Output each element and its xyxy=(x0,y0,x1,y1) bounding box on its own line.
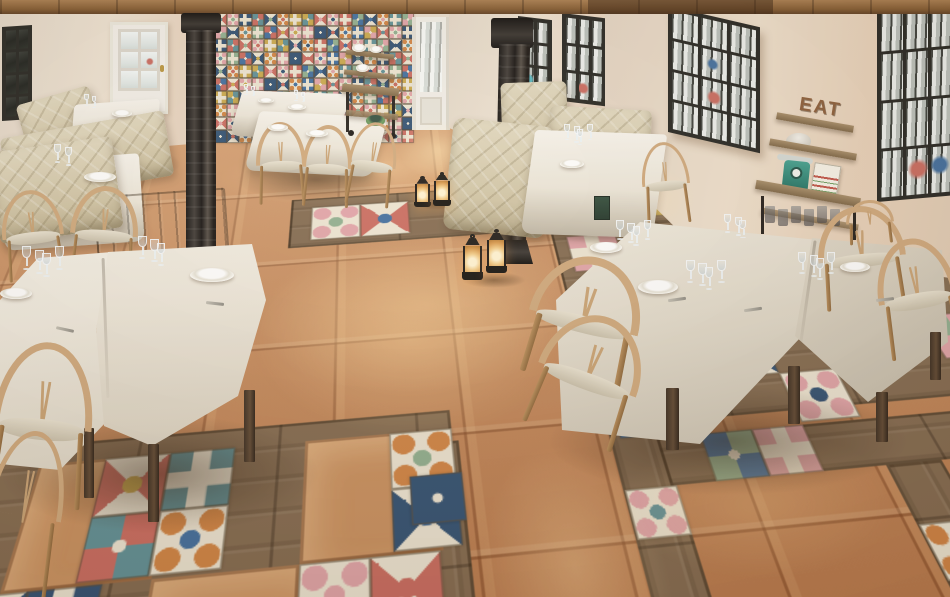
glass-foot xyxy=(55,161,60,163)
patchwork-tile xyxy=(364,13,377,26)
patchwork-tile xyxy=(264,13,277,26)
glass-foot xyxy=(817,278,823,280)
window-pane xyxy=(672,71,698,104)
patchwork-tile xyxy=(227,78,240,91)
patchwork-tile xyxy=(389,26,402,39)
patchwork-tile xyxy=(252,26,265,39)
patchwork-tile xyxy=(302,13,315,26)
wine-glass xyxy=(42,253,51,277)
wine-glass xyxy=(717,260,726,283)
patchwork-tile xyxy=(327,13,340,26)
glass-stem xyxy=(590,132,592,138)
table-leg xyxy=(788,366,800,424)
wishbone-chair xyxy=(639,140,694,226)
table-leg xyxy=(876,392,888,442)
chair-leg xyxy=(302,167,309,206)
wishbone-chair xyxy=(255,121,308,205)
window-pane xyxy=(141,52,158,69)
ceiling-beam xyxy=(0,0,950,14)
patchwork-tile xyxy=(277,26,290,39)
glass-stem xyxy=(727,223,729,230)
floor-patchwork-tile xyxy=(310,204,360,240)
patchwork-tile xyxy=(264,26,277,39)
glass-foot xyxy=(139,257,145,259)
lantern-base xyxy=(414,202,431,207)
glass-foot xyxy=(66,164,71,166)
glass-foot xyxy=(799,272,805,274)
wine-glass xyxy=(65,147,72,166)
shelf-dish xyxy=(370,46,382,53)
window-pane xyxy=(730,55,756,88)
floor-patchwork-tile xyxy=(296,557,371,597)
wine-glass xyxy=(644,220,652,240)
patchwork-tile xyxy=(227,39,240,52)
glass-foot xyxy=(56,268,63,270)
white-plate xyxy=(560,160,584,168)
patchwork-tile xyxy=(239,39,252,52)
wine-glass xyxy=(587,124,593,140)
french-door-panes xyxy=(118,29,160,91)
patchwork-tile xyxy=(327,26,340,39)
patchwork-tile xyxy=(377,26,390,39)
glass-stem xyxy=(647,230,649,237)
glass-stem xyxy=(819,269,821,277)
glass-stem xyxy=(567,132,569,138)
wine-glass xyxy=(616,220,624,240)
chair-leg xyxy=(385,169,391,209)
patchwork-tile xyxy=(227,26,240,39)
glass-tumbler xyxy=(791,206,801,223)
wine-glass xyxy=(816,258,824,280)
glass-stem xyxy=(161,254,163,262)
patchwork-tile xyxy=(239,13,252,26)
glass-stem xyxy=(709,278,711,286)
cast-iron-column xyxy=(186,30,216,252)
white-plate xyxy=(840,262,870,272)
patchwork-tile xyxy=(314,26,327,39)
glass-foot xyxy=(92,107,95,108)
patchwork-tile xyxy=(227,13,240,26)
glass-foot xyxy=(633,244,639,246)
patchwork-tile xyxy=(352,26,365,39)
window-pane xyxy=(537,45,549,66)
window-pane xyxy=(6,75,16,95)
glass-stem xyxy=(142,247,144,255)
glass-tumbler xyxy=(765,206,775,223)
window-pane xyxy=(672,41,698,74)
patchwork-tile xyxy=(264,39,277,52)
white-plate xyxy=(190,268,234,282)
patchwork-tile xyxy=(289,13,302,26)
window-pane xyxy=(701,48,727,81)
glass-bowl xyxy=(22,246,31,258)
glass-bowl xyxy=(798,252,806,263)
glass-stem xyxy=(26,258,28,267)
window-pane xyxy=(881,150,903,198)
glass-foot xyxy=(302,101,305,102)
patchwork-tile xyxy=(227,52,240,65)
window-pane xyxy=(672,102,698,135)
doorway-glass xyxy=(420,22,442,92)
glass-bowl xyxy=(816,258,824,269)
window-pane xyxy=(672,11,698,44)
window-pane xyxy=(592,48,602,74)
patchwork-tile xyxy=(302,78,315,91)
lantern-ring xyxy=(470,234,476,239)
patchwork-tile xyxy=(377,13,390,26)
patchwork-tile xyxy=(289,52,302,65)
patchwork-tile xyxy=(264,65,277,78)
window-pane xyxy=(141,32,158,49)
glass-foot xyxy=(578,144,583,145)
glass-bowl xyxy=(686,260,695,271)
glass-stem xyxy=(636,236,638,243)
floor-patchwork-tile xyxy=(370,550,445,597)
lantern-lid xyxy=(461,238,484,245)
patchwork-tile xyxy=(339,26,352,39)
wine-glass xyxy=(577,129,583,145)
glass-foot xyxy=(740,237,745,239)
white-plate xyxy=(258,98,274,103)
patchwork-tile xyxy=(314,13,327,26)
glass-stem xyxy=(253,91,255,95)
patchwork-tile xyxy=(227,91,240,104)
patchwork-tile xyxy=(289,39,302,52)
chair-leg xyxy=(74,433,83,510)
lantern-base xyxy=(433,200,451,206)
glass-stem xyxy=(59,258,61,267)
window-pane xyxy=(592,21,602,47)
glass-foot xyxy=(43,275,50,277)
wine-glass xyxy=(251,86,255,97)
patchwork-tile xyxy=(314,65,327,78)
glass-foot xyxy=(718,281,724,283)
window-pane xyxy=(566,45,576,71)
patchwork-tile xyxy=(302,65,315,78)
glass-foot xyxy=(645,238,651,240)
white-plate xyxy=(638,280,678,294)
patchwork-tile xyxy=(339,13,352,26)
glass-foot xyxy=(252,95,255,96)
patchwork-tile xyxy=(327,65,340,78)
table-leg xyxy=(666,388,679,450)
patchwork-tile xyxy=(239,26,252,39)
glass-foot xyxy=(617,238,623,240)
wine-glass xyxy=(798,252,806,274)
white-plate xyxy=(288,104,306,110)
patchwork-tile xyxy=(252,52,265,65)
glass-foot xyxy=(725,231,730,233)
glass-foot xyxy=(565,139,570,140)
wishbone-chair xyxy=(845,198,896,245)
glass-stem xyxy=(246,89,248,93)
wine-glass xyxy=(564,124,570,140)
patchwork-tile xyxy=(364,26,377,39)
glass-stem xyxy=(721,271,723,279)
back-doorway xyxy=(412,17,450,130)
glass-stem xyxy=(46,265,48,274)
window-pane xyxy=(701,18,727,51)
patchwork-tile xyxy=(327,39,340,52)
glass-bowl xyxy=(633,226,641,236)
glass-stem xyxy=(39,261,41,270)
window-pane xyxy=(931,146,950,194)
window-pane xyxy=(6,97,16,117)
lantern-base xyxy=(486,266,507,273)
glass-stem xyxy=(86,100,88,104)
patchwork-tile xyxy=(314,52,327,65)
patchwork-tile xyxy=(277,39,290,52)
glass-bowl xyxy=(54,144,61,153)
wine-glass xyxy=(294,90,298,101)
candle-lantern xyxy=(461,234,484,280)
window-pane xyxy=(730,85,756,118)
patchwork-tile xyxy=(239,65,252,78)
glass-stem xyxy=(57,153,59,160)
wine-glass xyxy=(724,214,731,233)
table-leg xyxy=(148,444,159,522)
patchwork-tile xyxy=(277,65,290,78)
window-pane xyxy=(566,17,576,43)
candle-lantern xyxy=(432,172,452,206)
white-plate xyxy=(306,130,328,137)
window-pane xyxy=(19,74,29,94)
white-plate xyxy=(112,110,132,117)
window-pane xyxy=(906,99,928,147)
glass-tumbler xyxy=(778,209,788,226)
shelf-dish xyxy=(356,64,369,72)
restaurant-scene: EAT xyxy=(0,0,950,597)
patchwork-tile xyxy=(264,78,277,91)
glass-stem xyxy=(690,271,692,279)
glass-foot xyxy=(828,272,834,274)
right-window-1 xyxy=(668,6,760,153)
chair-leg xyxy=(683,184,691,223)
window-pane xyxy=(121,52,138,69)
window-pane xyxy=(6,52,16,72)
glass-stem xyxy=(802,262,804,270)
glass-foot xyxy=(294,100,297,101)
glass-bowl xyxy=(827,252,835,263)
patchwork-tile xyxy=(277,78,290,91)
window-pane xyxy=(906,148,928,196)
glass-stem xyxy=(580,137,582,143)
window-pane xyxy=(906,50,928,98)
patchwork-tile xyxy=(314,78,327,91)
wine-glass xyxy=(244,84,248,95)
wine-glass xyxy=(739,220,746,239)
glass-bowl xyxy=(42,253,51,265)
window-pane xyxy=(19,29,29,49)
glass-foot xyxy=(158,264,164,266)
chair-leg xyxy=(885,306,896,362)
chair-leg xyxy=(888,222,893,243)
right-window-2 xyxy=(877,0,950,202)
window-pane xyxy=(730,115,756,148)
window-pane xyxy=(121,32,138,49)
wine-glass xyxy=(84,94,89,106)
wine-glass xyxy=(686,260,695,283)
glass-stem xyxy=(831,262,833,270)
window-pane xyxy=(141,71,158,88)
white-plate xyxy=(0,288,32,299)
patchwork-tile xyxy=(252,39,265,52)
wine-glass xyxy=(705,267,714,290)
table-leg xyxy=(244,390,255,462)
patchwork-tile xyxy=(277,13,290,26)
wine-glass xyxy=(22,246,31,270)
wine-glass xyxy=(138,236,147,259)
glass-bowl xyxy=(55,246,64,258)
glass-bowl xyxy=(739,220,746,229)
window-pane xyxy=(881,52,903,100)
shelf-dish xyxy=(352,44,366,52)
patchwork-tile xyxy=(289,26,302,39)
patchwork-tile xyxy=(389,39,402,52)
glass-stem xyxy=(743,229,745,236)
patchwork-tile xyxy=(277,52,290,65)
patchwork-tile xyxy=(302,52,315,65)
glass-stem xyxy=(68,156,70,163)
patchwork-tile xyxy=(327,78,340,91)
window-pane xyxy=(19,51,29,71)
glass-stem xyxy=(296,95,298,99)
window-pane xyxy=(6,30,16,50)
floor-patchwork-tile xyxy=(919,519,950,581)
window-pane xyxy=(579,74,589,100)
window-pane xyxy=(931,48,950,96)
lantern-lid xyxy=(485,233,508,240)
patchwork-tile xyxy=(327,52,340,65)
glass-bowl xyxy=(65,147,72,156)
chair-leg xyxy=(850,225,853,246)
patchwork-tile xyxy=(252,13,265,26)
patchwork-tile xyxy=(227,65,240,78)
glass-stem xyxy=(303,97,305,101)
menu-board xyxy=(594,196,610,220)
glass-foot xyxy=(85,105,88,106)
floor-patchwork-tile xyxy=(410,472,468,526)
glass-bowl xyxy=(717,260,726,271)
chair-seat xyxy=(259,160,302,172)
scale-dial xyxy=(790,166,803,179)
window-pane xyxy=(579,19,589,45)
glass-stem xyxy=(619,230,621,237)
window-pane xyxy=(537,22,549,43)
glass-bowl xyxy=(705,267,714,278)
lantern-glass xyxy=(434,181,451,201)
window-pane xyxy=(931,97,950,145)
wine-glass xyxy=(827,252,835,274)
white-plate xyxy=(590,242,622,253)
glass-bowl xyxy=(724,214,731,223)
patchwork-tile xyxy=(264,52,277,65)
wine-glass xyxy=(157,243,166,266)
window-pane xyxy=(566,73,576,99)
glass-foot xyxy=(23,268,30,270)
glass-foot xyxy=(706,288,712,290)
window-pane xyxy=(579,47,589,73)
patchwork-tile xyxy=(289,65,302,78)
glass-bowl xyxy=(644,220,652,230)
wine-glass xyxy=(54,144,61,163)
patchwork-tile xyxy=(302,39,315,52)
window-pane xyxy=(592,76,602,102)
glass-bowl xyxy=(138,236,147,247)
lantern-glass xyxy=(415,184,431,202)
window-pane xyxy=(881,101,903,149)
door-handle xyxy=(160,65,164,72)
lantern-glass xyxy=(487,240,506,266)
wine-glass xyxy=(92,96,97,108)
console-leg xyxy=(761,196,764,234)
wine-glass xyxy=(55,246,64,270)
glass-bowl xyxy=(157,243,166,254)
patchwork-tile xyxy=(314,39,327,52)
candle-lantern xyxy=(485,229,508,273)
lantern-ring xyxy=(494,229,500,233)
glass-foot xyxy=(687,281,693,283)
lantern-glass xyxy=(463,246,482,273)
white-plate xyxy=(84,172,116,182)
patchwork-tile xyxy=(389,13,402,26)
window-pane xyxy=(730,24,756,57)
glass-bowl xyxy=(616,220,624,230)
glass-foot xyxy=(244,94,247,95)
wine-glass xyxy=(301,92,305,103)
patchwork-tile xyxy=(352,13,365,26)
chair-back-arc xyxy=(639,140,691,187)
mid-window-2 xyxy=(562,13,606,106)
glass-foot xyxy=(588,139,593,140)
white-plate xyxy=(268,124,288,131)
patchwork-tile xyxy=(239,52,252,65)
chair-leg xyxy=(259,166,263,205)
wine-glass xyxy=(633,226,641,246)
window-pane xyxy=(121,71,138,88)
patchwork-tile xyxy=(252,65,265,78)
candle-lantern xyxy=(413,176,432,207)
window-pane xyxy=(701,108,727,141)
glass-stem xyxy=(94,102,96,106)
window-pane xyxy=(701,78,727,111)
patchwork-tile xyxy=(302,26,315,39)
lantern-base xyxy=(462,272,483,280)
chair-leg xyxy=(7,240,12,282)
